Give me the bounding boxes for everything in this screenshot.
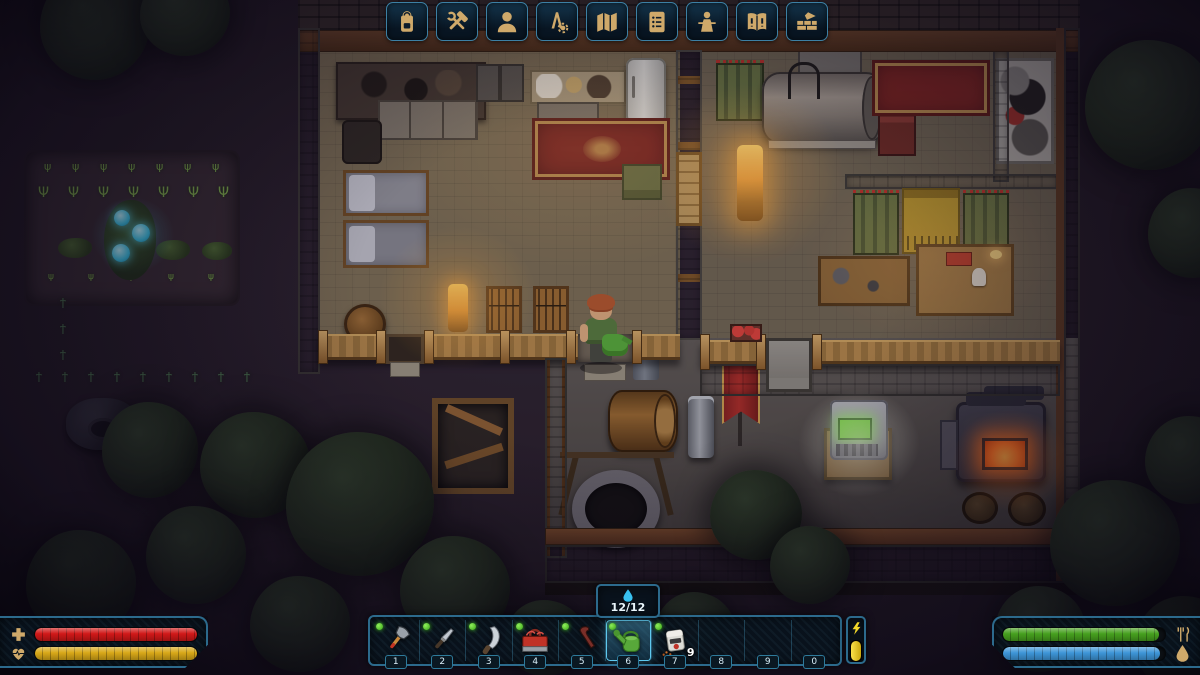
character-bust-icon — [494, 9, 520, 35]
slot-key-label: 6 — [617, 655, 639, 669]
gate-steps — [390, 362, 420, 377]
hotbar-slot-4[interactable]: 4 — [513, 620, 560, 661]
tree — [1050, 480, 1180, 606]
fence-post — [318, 330, 328, 364]
inventory-button[interactable] — [386, 2, 428, 41]
machine-panel — [836, 444, 878, 456]
energy-indicator[interactable] — [846, 616, 866, 664]
quests-button[interactable] — [636, 2, 678, 41]
player-character[interactable] — [578, 292, 624, 372]
fence-post — [632, 330, 642, 364]
tree — [146, 506, 246, 604]
fridge-handle — [632, 76, 635, 98]
medical-cross-icon — [8, 626, 28, 643]
desk-lamp — [990, 250, 1002, 259]
vitals-panel-right — [992, 616, 1200, 668]
glow-plant-foliage[interactable] — [104, 200, 156, 280]
slot-key-label: 0 — [803, 655, 825, 669]
furnace-window — [982, 438, 1028, 470]
droplet-icon — [1172, 645, 1192, 662]
glow-berry — [114, 210, 130, 226]
fence-post — [812, 334, 822, 370]
gas-cylinder-rack[interactable] — [716, 60, 764, 121]
crop-bush[interactable] — [58, 238, 92, 258]
fence-gate-closed[interactable] — [386, 334, 424, 364]
counter-food-items — [536, 74, 620, 98]
health-bar — [34, 627, 198, 642]
glow-berry — [132, 224, 150, 242]
glow-berry — [112, 244, 130, 262]
workbench[interactable] — [818, 256, 910, 306]
fuel-hose — [788, 62, 820, 99]
well-crossbar — [560, 452, 674, 458]
hotbar-slot-6[interactable]: 6 — [606, 620, 653, 661]
slot-key-label: 1 — [385, 655, 407, 669]
hotbar-slot-1[interactable]: 1 — [373, 620, 420, 661]
machete-icon — [472, 624, 506, 658]
furnace-side-panel — [940, 420, 958, 470]
character-button[interactable] — [486, 2, 528, 41]
flower-planter[interactable] — [730, 324, 762, 342]
crafting-button[interactable] — [436, 2, 478, 41]
hotbar-slots: 12345697890 — [370, 617, 840, 664]
slot-key-label: 8 — [710, 655, 732, 669]
hotbar-slot-7[interactable]: 97 — [652, 620, 699, 661]
hall-carpet — [872, 60, 990, 116]
book-icon — [744, 9, 770, 35]
bed-pillow — [349, 175, 375, 211]
journal-button[interactable] — [736, 2, 778, 41]
slot-key-label: 7 — [664, 655, 686, 669]
fence-post — [700, 334, 710, 370]
hotbar-slot-9[interactable]: 9 — [745, 620, 792, 661]
desk-chair[interactable] — [342, 120, 382, 164]
capacity-value: 12/12 — [611, 602, 646, 613]
carpet-medallion — [580, 134, 624, 164]
construction-button[interactable] — [786, 2, 828, 41]
tank-skid — [768, 140, 876, 149]
vitals-panel-left — [0, 616, 208, 668]
food-bar-fill — [1003, 628, 1159, 641]
crop-row-sprouts: ψψψψψψψ — [40, 162, 230, 176]
slot-key-label: 3 — [478, 655, 500, 669]
toolbox-icon — [518, 624, 552, 658]
hotbar-slot-8[interactable]: 8 — [699, 620, 746, 661]
slot-key-label: 2 — [431, 655, 453, 669]
food-bar — [1002, 627, 1166, 642]
stove[interactable] — [476, 64, 524, 102]
hammer-wrench-icon — [444, 9, 470, 35]
metal-post[interactable] — [688, 396, 714, 458]
stamina-bar — [34, 646, 198, 661]
inner-wall-horizontal — [845, 174, 1059, 189]
health-bar-fill — [35, 628, 197, 641]
cabinet-drawers[interactable] — [378, 100, 478, 140]
combat-knife-icon — [425, 624, 459, 658]
center-wall-door[interactable] — [676, 152, 702, 226]
quest-list-icon — [644, 9, 670, 35]
water-bar — [1002, 646, 1166, 661]
fence-right-base — [700, 364, 1060, 396]
green-chest[interactable] — [622, 164, 662, 200]
fence-post — [566, 330, 576, 364]
crop-bush[interactable] — [202, 242, 232, 260]
brick-trowel-icon — [794, 9, 820, 35]
tree — [770, 526, 850, 604]
backpack-icon — [394, 9, 420, 35]
hotbar-slot-5[interactable]: 5 — [559, 620, 606, 661]
map-icon — [594, 9, 620, 35]
slot-key-label: 4 — [524, 655, 546, 669]
slot-key-label: 5 — [571, 655, 593, 669]
player-hair — [587, 294, 615, 310]
hotbar-slot-3[interactable]: 3 — [466, 620, 513, 661]
fence-post — [424, 330, 434, 364]
social-button[interactable] — [686, 2, 728, 41]
game-screen: ψψψψψψψ ΨΨΨΨΨΨΨ ψψψψψ ϯϯϯϯϯϯϯϯϯ ϯϯϯ — [0, 0, 1200, 675]
podium-speaker-icon — [694, 9, 720, 35]
crop-bush[interactable] — [156, 240, 190, 260]
pillar-lamp[interactable] — [448, 284, 468, 332]
hotbar-slot-0[interactable]: 0 — [792, 620, 838, 661]
technologies-button[interactable] — [536, 2, 578, 41]
fence-post — [376, 330, 386, 364]
display-cabinet[interactable] — [533, 286, 569, 333]
inner-wall-lab — [993, 50, 1009, 182]
fork-knife-icon — [1172, 626, 1192, 643]
hotbar: 12345697890 — [368, 615, 842, 666]
battery-rack[interactable] — [853, 190, 899, 255]
hotbar-slot-2[interactable]: 2 — [420, 620, 467, 661]
trellis-column: ϯϯϯ — [60, 298, 78, 378]
tree — [102, 402, 198, 498]
watering-can-icon — [611, 624, 645, 658]
axe-icon — [379, 624, 413, 658]
toolbox-on-bench — [946, 252, 972, 266]
fence-post — [500, 330, 510, 364]
heart-pulse-icon — [8, 645, 28, 662]
slot-key-label: 9 — [757, 655, 779, 669]
energy-bar-track — [850, 640, 862, 662]
bench-bust — [972, 268, 986, 286]
water-bar-fill — [1003, 647, 1160, 660]
player-arm — [580, 324, 588, 342]
top-toolbar — [386, 2, 828, 41]
item-count: 9 — [687, 646, 695, 659]
crowbar-icon — [565, 624, 599, 658]
energy-bar-fill — [851, 641, 861, 661]
selected-item-tooltip: 12/12 — [596, 584, 660, 618]
compass-gear-icon — [544, 9, 570, 35]
fence-right — [700, 340, 1060, 364]
wall-left — [298, 28, 320, 374]
tree — [250, 576, 350, 672]
storage-barrel[interactable] — [1008, 492, 1046, 526]
display-cabinet[interactable] — [486, 286, 522, 333]
pillar-lamp-tall[interactable] — [737, 145, 763, 221]
bed-pillow — [349, 226, 375, 262]
map-button[interactable] — [586, 2, 628, 41]
lightning-icon — [851, 620, 862, 639]
stamina-bar-fill — [35, 647, 197, 660]
metal-gate[interactable] — [766, 338, 812, 392]
tree — [1085, 40, 1200, 170]
storage-barrel[interactable] — [962, 492, 998, 524]
rain-barrel-end — [654, 394, 676, 448]
machine-screen — [838, 418, 872, 440]
